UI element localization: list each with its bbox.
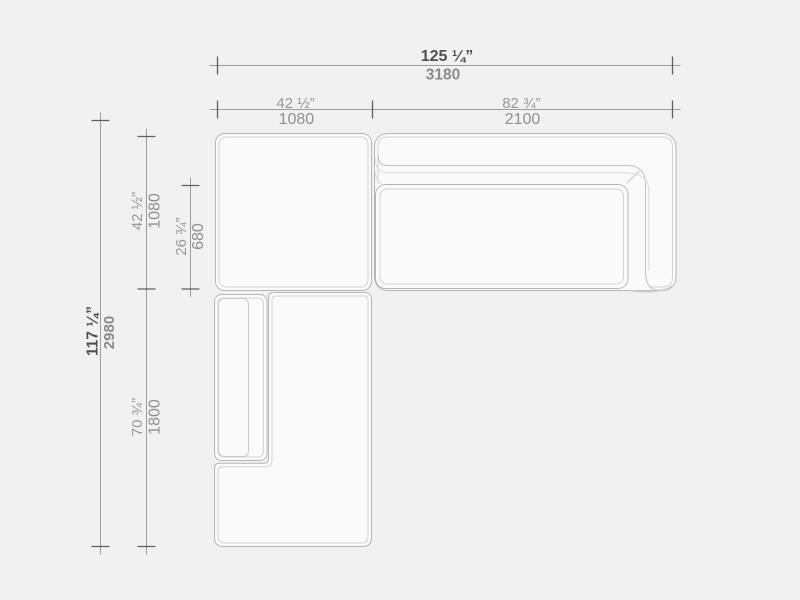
svg-text:2100: 2100 — [505, 111, 541, 128]
svg-text:42 ½”: 42 ½” — [129, 192, 146, 230]
svg-text:680: 680 — [190, 223, 207, 250]
svg-text:1080: 1080 — [279, 111, 315, 128]
svg-text:3180: 3180 — [426, 67, 460, 84]
svg-text:42 ½”: 42 ½” — [276, 95, 314, 112]
svg-text:1800: 1800 — [147, 399, 164, 435]
svg-text:1080: 1080 — [147, 193, 164, 229]
svg-text:26 ¾”: 26 ¾” — [173, 217, 190, 255]
svg-text:2980: 2980 — [101, 316, 118, 349]
svg-text:117 ¼”: 117 ¼” — [85, 306, 102, 356]
svg-text:82 ¾”: 82 ¾” — [502, 95, 540, 112]
svg-text:125 ¼”: 125 ¼” — [421, 48, 473, 65]
svg-text:70 ¾”: 70 ¾” — [129, 398, 146, 436]
